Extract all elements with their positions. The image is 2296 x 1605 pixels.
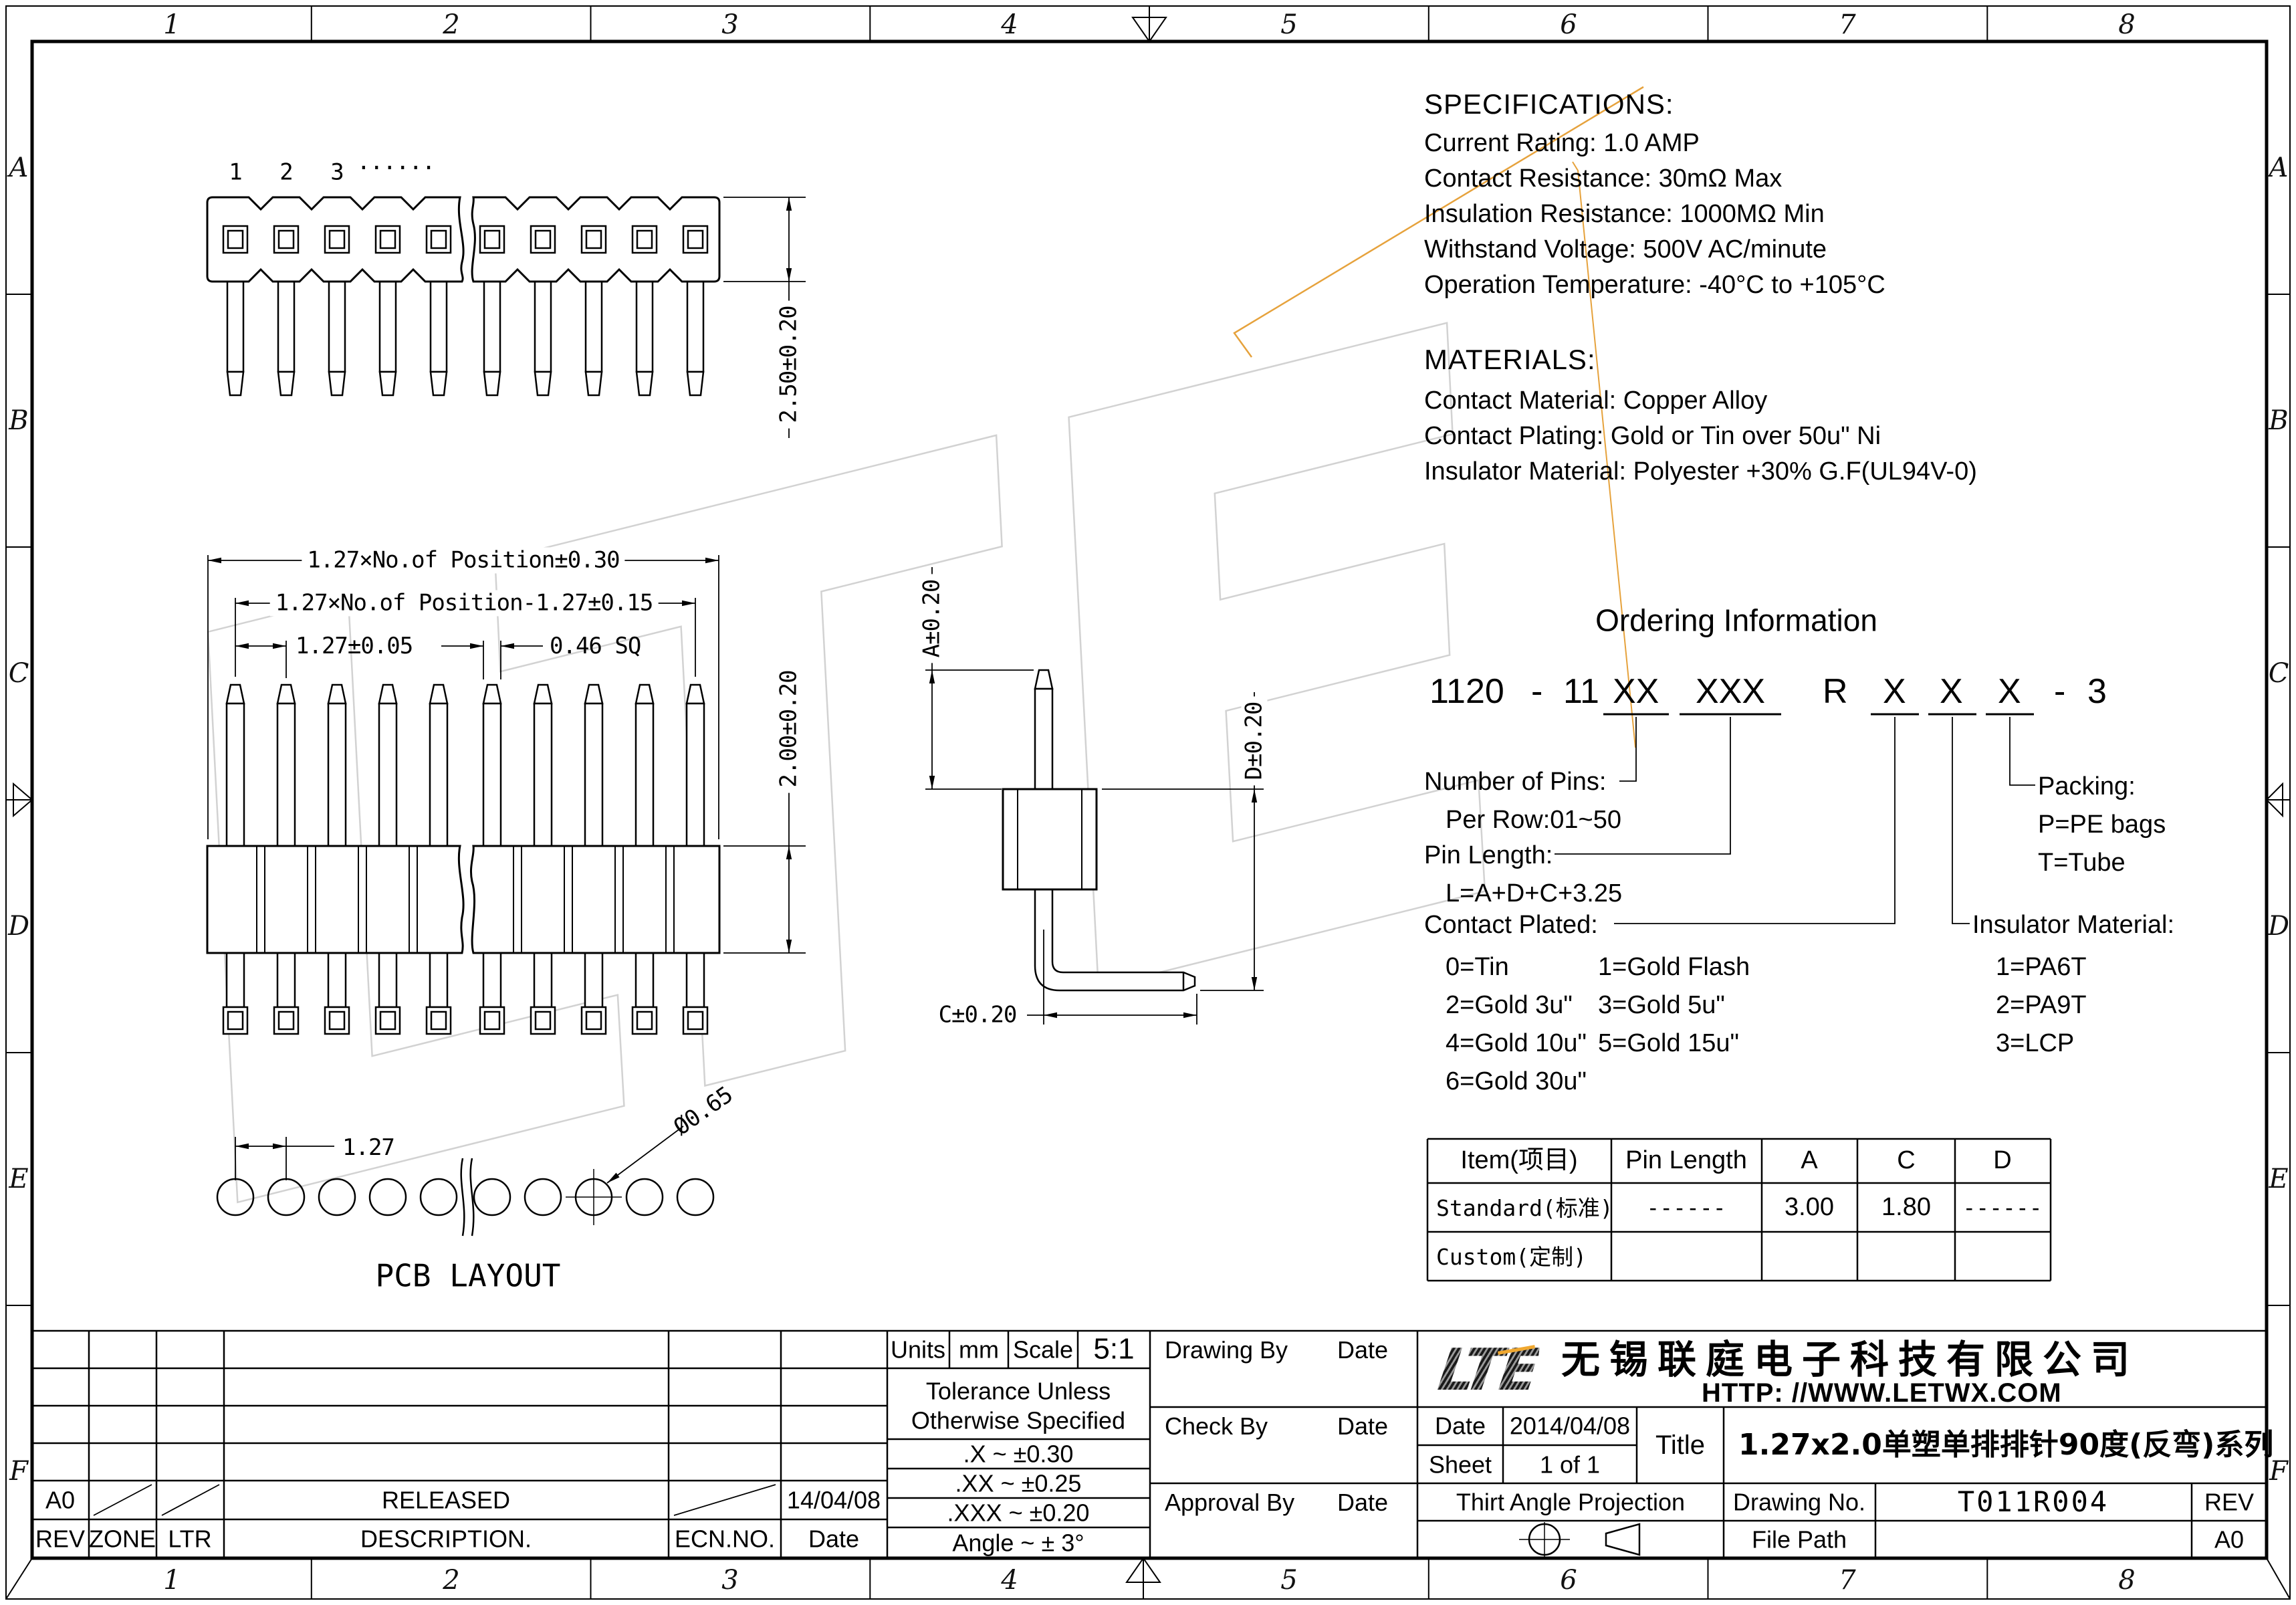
material-line: Contact Plating: Gold or Tin over 50u" N… — [1424, 422, 1881, 451]
date-value: 2014/04/08 — [1510, 1412, 1630, 1439]
projection-label: Thirt Angle Projection — [1456, 1488, 1685, 1515]
file-path-label: File Path — [1752, 1525, 1847, 1553]
ordering-code-part: R — [1823, 672, 1848, 712]
zone-col-label: 3 — [721, 1565, 738, 1596]
scale-value: 5:1 — [1093, 1333, 1134, 1367]
dim-c: C±0.20 — [933, 1002, 1022, 1028]
date-label: Date — [1435, 1412, 1486, 1439]
packing-label: Packing: — [2038, 772, 2136, 802]
company-url: HTTP: //WWW.LETWX.COM — [1702, 1378, 2062, 1408]
check-by-date-label: Date — [1337, 1412, 1388, 1440]
table-cell: ------ — [1646, 1195, 1726, 1220]
scale-label: Scale — [1013, 1335, 1073, 1363]
zone-row-label: C — [2269, 658, 2289, 689]
table-cell: ------ — [1962, 1195, 2042, 1220]
pcb-layout-label: PCB LAYOUT — [376, 1259, 561, 1294]
contact-plated-option: 5=Gold 15u" — [1598, 1029, 1739, 1059]
zone-col-label: 1 — [163, 1565, 180, 1596]
zone-col-label: 5 — [1280, 9, 1297, 40]
pin-number-1: 1 — [229, 159, 241, 185]
drawing-sheet: LTE — [0, 0, 2296, 1605]
specifications-title: SPECIFICATIONS: — [1424, 88, 1674, 120]
zone-row-label: D — [2267, 911, 2289, 942]
dim-2-50: 2.50±0.20 — [776, 300, 802, 428]
table-header-item: Item(项目) — [1460, 1146, 1577, 1176]
contact-plated-option: 1=Gold Flash — [1598, 953, 1750, 982]
contact-plated-option: 3=Gold 5u" — [1598, 991, 1725, 1021]
revision-header-zone: ZONE — [89, 1525, 156, 1552]
zone-col-label: 4 — [1000, 1565, 1018, 1596]
zone-col-label: 2 — [442, 1565, 459, 1596]
contact-plated-label: Contact Plated: — [1424, 911, 1598, 940]
zone-row-label: C — [9, 658, 29, 689]
spec-line: Withstand Voltage: 500V AC/minute — [1424, 235, 1827, 265]
table-row-standard: Standard(标准) — [1436, 1196, 1613, 1221]
ordering-code-part: X — [1998, 672, 2021, 712]
ordering-code-part: 11 — [1563, 672, 1599, 712]
zone-col-label: 5 — [1280, 1565, 1297, 1596]
pin-number-dots: ······ — [357, 155, 435, 181]
insulator-option: 2=PA9T — [1996, 991, 2087, 1021]
ordering-code-part: X — [1940, 672, 1963, 712]
dim-pitch: 1.27±0.05 — [296, 633, 413, 659]
dim-row1: 1.27×No.of Position±0.30 — [302, 547, 624, 573]
tolerance-note-line2: Otherwise Specified — [911, 1406, 1125, 1434]
zone-col-label: 6 — [1560, 9, 1577, 40]
revision-date-value: 14/04/08 — [787, 1486, 881, 1513]
contact-plated-option: 0=Tin — [1446, 953, 1509, 982]
ordering-leader-lines — [1555, 714, 2035, 924]
zone-row-label: E — [2268, 1164, 2288, 1194]
approval-by-label: Approval By — [1165, 1489, 1294, 1516]
revision-header-description: DESCRIPTION. — [360, 1525, 532, 1552]
dim-2-00: 2.00±0.20 — [776, 665, 802, 792]
table-cell: 3.00 — [1785, 1193, 1834, 1222]
ordering-code-part: - — [2054, 672, 2065, 712]
sheet-label: Sheet — [1429, 1451, 1492, 1478]
spec-line: Current Rating: 1.0 AMP — [1424, 129, 1700, 158]
zone-col-label: 7 — [1839, 1565, 1856, 1596]
rev-label: REV — [2204, 1488, 2254, 1515]
table-row-custom: Custom(定制) — [1436, 1245, 1587, 1270]
table-header-c: C — [1897, 1146, 1915, 1176]
revision-header-ecn: ECN.NO. — [675, 1525, 775, 1552]
ordering-code-part: - — [1531, 672, 1542, 712]
materials-title: MATERIALS: — [1424, 344, 1596, 376]
zone-col-label: 1 — [163, 9, 180, 40]
pin-number-3: 3 — [330, 159, 343, 185]
ordering-code-part: 3 — [2087, 672, 2107, 712]
packing-option: P=PE bags — [2038, 811, 2166, 840]
dim-d: D±0.20 — [1241, 697, 1267, 786]
tolerance-x: .X ~ ±0.30 — [963, 1440, 1074, 1467]
sheet-value: 1 of 1 — [1540, 1451, 1600, 1478]
drawing-title-value: 1.27x2.0单塑单排排针90度(反弯)系列 — [1738, 1428, 2273, 1463]
contact-plated-option: 6=Gold 30u" — [1446, 1067, 1587, 1097]
zone-col-label: 8 — [2118, 9, 2135, 40]
insulator-option: 1=PA6T — [1996, 953, 2087, 982]
zone-col-label: 8 — [2118, 1565, 2135, 1596]
zone-col-label: 3 — [721, 9, 738, 40]
ordering-code-part: XXX — [1696, 672, 1765, 712]
ordering-code-part: XX — [1613, 672, 1659, 712]
zone-row-label: E — [8, 1164, 28, 1194]
zone-col-label: 4 — [1000, 9, 1018, 40]
insulator-material-label: Insulator Material: — [1972, 911, 2174, 940]
contact-plated-option: 4=Gold 10u" — [1446, 1029, 1587, 1059]
tolerance-xx: .XX ~ ±0.25 — [955, 1469, 1082, 1497]
dim-sq: 0.46 SQ — [550, 633, 641, 659]
material-line: Insulator Material: Polyester +30% G.F(U… — [1424, 457, 1977, 487]
revision-rev-value: A0 — [45, 1486, 75, 1513]
pin-length-value: L=A+D+C+3.25 — [1446, 879, 1622, 909]
spec-line: Contact Resistance: 30mΩ Max — [1424, 165, 1782, 194]
table-header-a: A — [1801, 1146, 1817, 1176]
company-name: 无锡联庭电子科技有限公司 — [1561, 1337, 2139, 1382]
ordering-code-part: 1120 — [1429, 672, 1504, 712]
zone-row-label: A — [2267, 152, 2289, 183]
drawing-by-label: Drawing By — [1165, 1336, 1288, 1364]
packing-option: T=Tube — [2038, 849, 2126, 878]
spec-line: Insulation Resistance: 1000MΩ Min — [1424, 200, 1825, 229]
zone-col-label: 2 — [442, 9, 459, 40]
approval-by-date-label: Date — [1337, 1489, 1388, 1516]
check-by-label: Check By — [1165, 1412, 1268, 1440]
insulator-option: 3=LCP — [1996, 1029, 2074, 1059]
zone-row-label: D — [7, 911, 29, 942]
zone-col-label: 7 — [1839, 9, 1856, 40]
material-line: Contact Material: Copper Alloy — [1424, 387, 1767, 416]
units-label: Units — [891, 1335, 945, 1363]
zone-row-label: B — [2268, 405, 2288, 436]
ordering-code-part: X — [1883, 672, 1906, 712]
zone-row-label: A — [7, 152, 29, 183]
table-header-d: D — [1993, 1146, 2011, 1176]
table-cell: 1.80 — [1881, 1193, 1931, 1222]
number-of-pins-label: Number of Pins: — [1424, 768, 1606, 797]
drawing-by-date-label: Date — [1337, 1336, 1388, 1364]
pin-length-label: Pin Length: — [1424, 841, 1553, 871]
pcb-dim-pitch: 1.27 — [342, 1135, 394, 1161]
third-angle-projection-icon — [1519, 1522, 1639, 1557]
revision-header-date: Date — [808, 1525, 859, 1552]
number-of-pins-value: Per Row:01~50 — [1446, 806, 1621, 835]
drawing-no-value: T011R004 — [1958, 1486, 2109, 1518]
ordering-title: Ordering Information — [1595, 603, 1877, 639]
revision-header-rev: REV — [35, 1525, 85, 1552]
revision-header-ltr: LTR — [168, 1525, 211, 1552]
dim-a: A±0.20 — [919, 574, 945, 663]
tolerance-xxx: .XXX ~ ±0.20 — [947, 1499, 1090, 1526]
table-header-pin-length: Pin Length — [1625, 1146, 1747, 1176]
revision-description-value: RELEASED — [382, 1486, 510, 1513]
title-label: Title — [1655, 1430, 1705, 1461]
drawing-no-label: Drawing No. — [1733, 1488, 1865, 1515]
contact-plated-option: 2=Gold 3u" — [1446, 991, 1573, 1021]
zone-col-label: 6 — [1560, 1565, 1577, 1596]
rev-value: A0 — [2214, 1525, 2244, 1553]
tolerance-note-line1: Tolerance Unless — [926, 1377, 1111, 1404]
pin-number-2: 2 — [279, 159, 292, 185]
zone-row-label: F — [9, 1456, 29, 1487]
zone-row-label: B — [8, 405, 28, 436]
dim-row2: 1.27×No.of Position-1.27±0.15 — [270, 590, 659, 616]
spec-line: Operation Temperature: -40°C to +105°C — [1424, 271, 1885, 300]
units-value: mm — [959, 1335, 999, 1363]
tolerance-angle: Angle ~ ± 3° — [952, 1529, 1084, 1556]
